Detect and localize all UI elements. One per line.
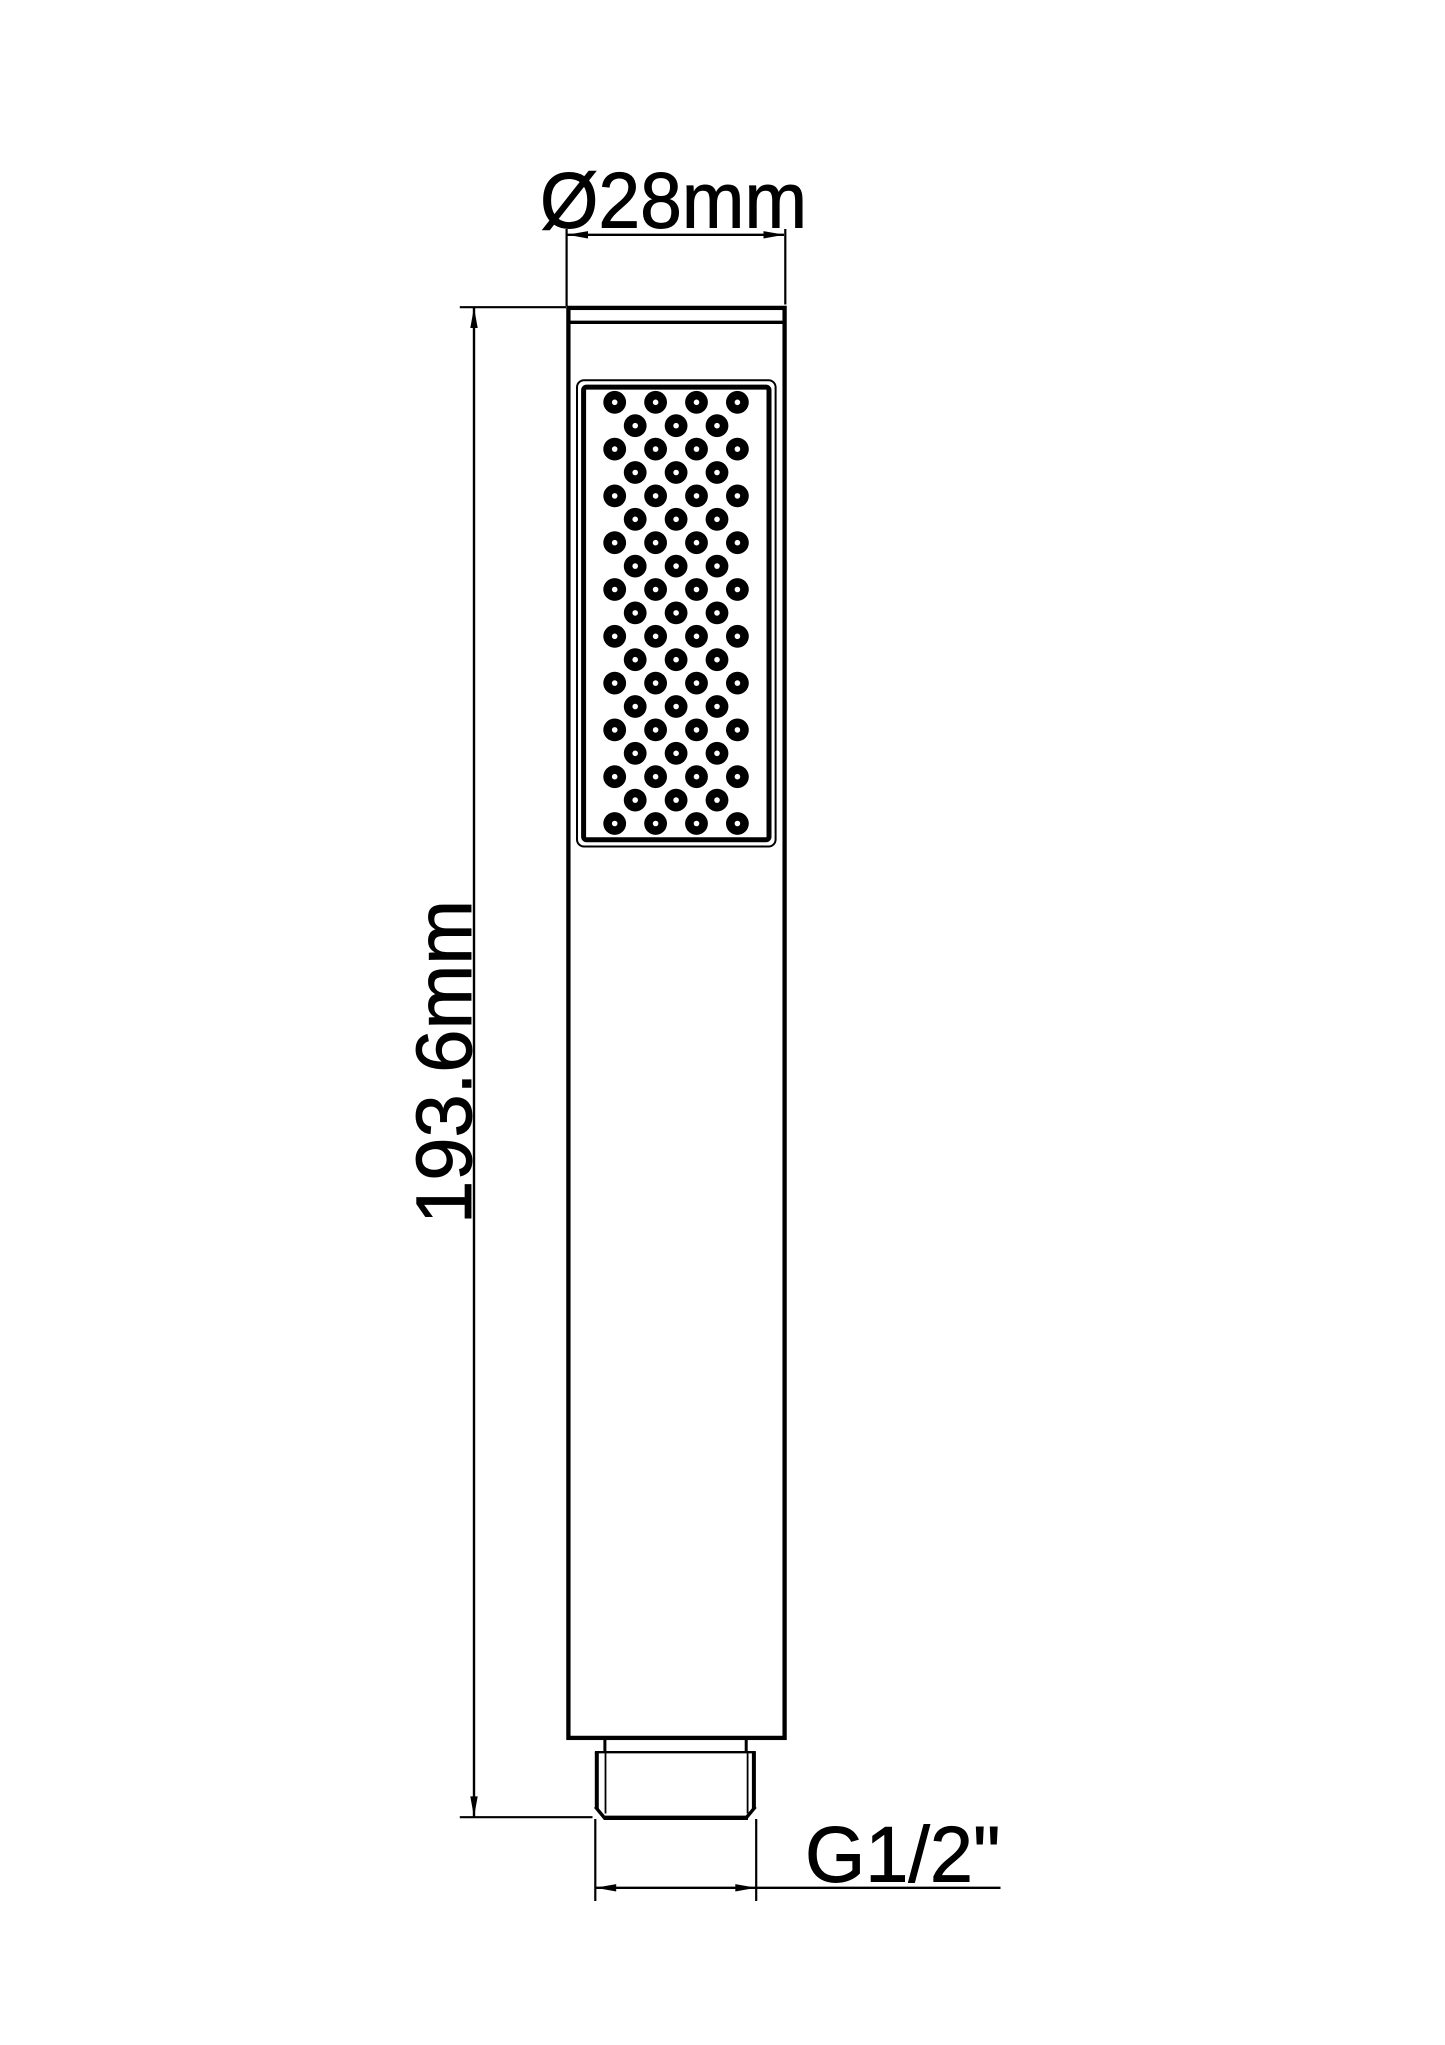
svg-text:G1/2": G1/2" [805, 1810, 1001, 1899]
svg-text:193.6mm: 193.6mm [399, 900, 488, 1224]
svg-text:Ø28mm: Ø28mm [540, 156, 807, 245]
